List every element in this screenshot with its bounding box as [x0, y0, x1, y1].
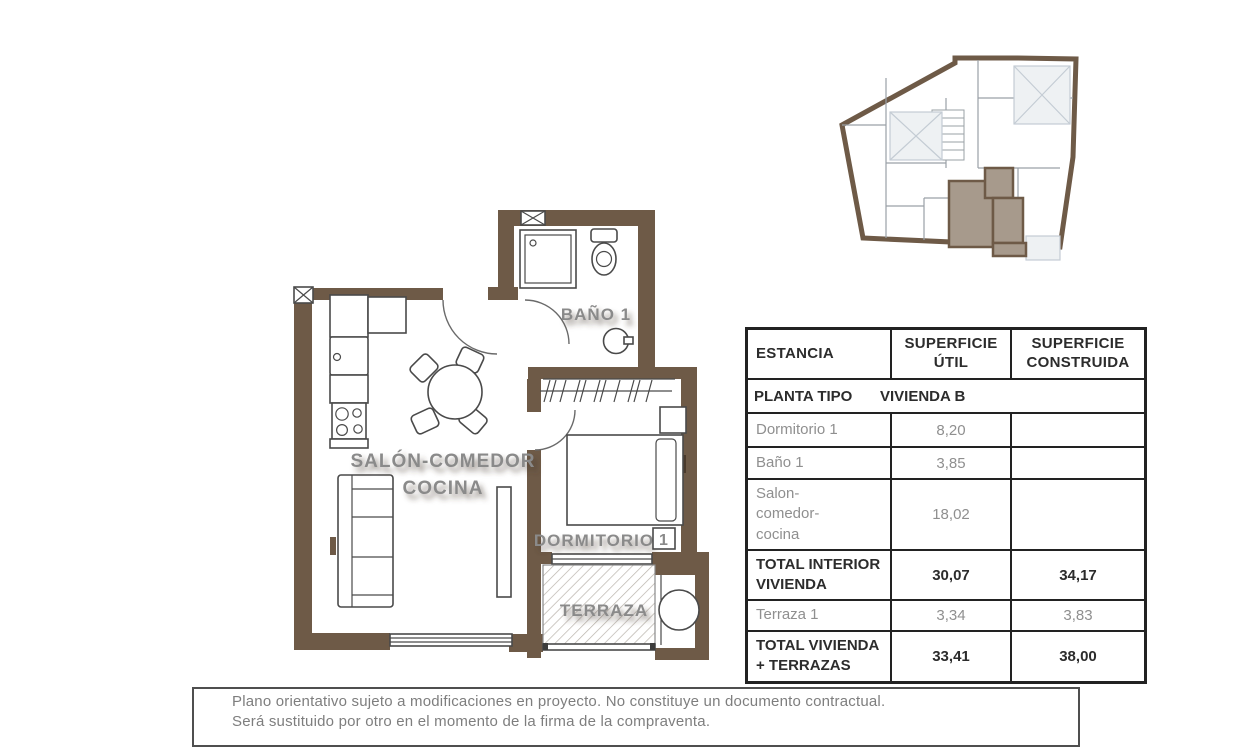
label-dormitorio-number: 1 [653, 528, 675, 549]
cell-estancia: Salon- comedor- cocina [756, 485, 819, 543]
cell-construida [1011, 413, 1146, 447]
label-salon-line1: SALÓN-COMEDOR [350, 450, 535, 472]
disclaimer-line2: Será sustituido por otro en el momento d… [232, 712, 1078, 732]
cell-estancia: TOTAL VIVIENDA + TERRAZAS [756, 637, 879, 674]
cell-util: 3,34 [891, 600, 1011, 630]
floor-plan: SALÓN-COMEDOR COCINA BAÑO 1 DORMITORIO T… [283, 200, 715, 665]
cell-util: 3,85 [891, 447, 1011, 479]
table-row: Terraza 1 3,34 3,83 [747, 600, 1146, 630]
disclaimer-line1: Plano orientativo sujeto a modificacione… [232, 692, 1078, 712]
cell-util: 8,20 [891, 413, 1011, 447]
toilet [591, 229, 617, 275]
dining-table [408, 346, 488, 436]
header-estancia: ESTANCIA [747, 329, 892, 380]
cell-util: 33,41 [891, 631, 1011, 683]
table-row-total-interior: TOTAL INTERIOR VIVIENDA 30,07 34,17 [747, 550, 1146, 601]
cell-construida: 38,00 [1011, 631, 1146, 683]
cell-estancia: Terraza 1 [756, 606, 819, 623]
cell-util: 30,07 [891, 550, 1011, 601]
table-row: Baño 1 3,85 [747, 447, 1146, 479]
header-superficie-construida: SUPERFICIE CONSTRUIDA [1011, 329, 1146, 380]
vivienda-label: VIVIENDA B [880, 388, 965, 405]
sideboard [497, 487, 511, 597]
page: SALÓN-COMEDOR COCINA BAÑO 1 DORMITORIO T… [0, 0, 1240, 720]
table-subheader-row: PLANTA TIPO VIVIENDA B [747, 379, 1146, 413]
svg-text:1: 1 [659, 532, 669, 549]
ac-shaft [659, 575, 699, 645]
bed [567, 407, 686, 525]
kitchen-units [330, 295, 406, 448]
shower [520, 230, 576, 288]
label-bano: BAÑO 1 [561, 304, 631, 324]
washbasin [604, 329, 634, 354]
table-row: Salon- comedor- cocina 18,02 [747, 479, 1146, 550]
window-living [390, 634, 512, 646]
cell-construida [1011, 447, 1146, 479]
planta-tipo-label: PLANTA TIPO [754, 388, 880, 405]
sofa [338, 475, 393, 607]
areas-table: ESTANCIA SUPERFICIE ÚTIL SUPERFICIE CONS… [745, 327, 1147, 684]
disclaimer-box: Plano orientativo sujeto a modificacione… [192, 687, 1080, 747]
wardrobe [540, 379, 675, 402]
header-superficie-util: SUPERFICIE ÚTIL [891, 329, 1011, 380]
label-dormitorio: DORMITORIO [534, 531, 654, 550]
table-row-total-vivienda: TOTAL VIVIENDA + TERRAZAS 33,41 38,00 [747, 631, 1146, 683]
label-salon-line2: COCINA [403, 478, 484, 499]
cell-util: 18,02 [891, 479, 1011, 550]
cell-estancia: Baño 1 [756, 454, 804, 471]
table-header-row: ESTANCIA SUPERFICIE ÚTIL SUPERFICIE CONS… [747, 329, 1146, 380]
cell-estancia: TOTAL INTERIOR VIVIENDA [756, 556, 880, 593]
key-plan [828, 38, 1092, 276]
label-terraza: TERRAZA [560, 601, 648, 620]
cell-construida [1011, 479, 1146, 550]
cell-construida: 34,17 [1011, 550, 1146, 601]
entry-door-arc [443, 300, 497, 354]
cell-construida: 3,83 [1011, 600, 1146, 630]
table-row: Dormitorio 1 8,20 [747, 413, 1146, 447]
cell-estancia: Dormitorio 1 [756, 421, 838, 438]
window-bedroom [552, 554, 652, 564]
